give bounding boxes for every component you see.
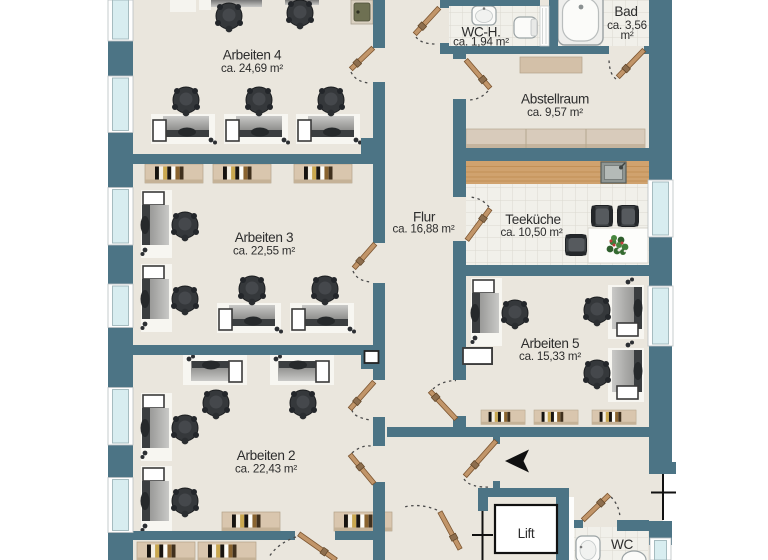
svg-text:Bad: Bad bbox=[614, 4, 637, 19]
svg-text:ca. 16,88 m²: ca. 16,88 m² bbox=[392, 223, 454, 236]
svg-text:Lift: Lift bbox=[518, 526, 535, 541]
svg-text:ca. 22,55 m²: ca. 22,55 m² bbox=[233, 245, 295, 258]
svg-text:ca. 9,57 m²: ca. 9,57 m² bbox=[527, 106, 583, 119]
svg-text:Abstellraum: Abstellraum bbox=[521, 92, 589, 107]
svg-text:ca. 15,33 m²: ca. 15,33 m² bbox=[519, 350, 581, 363]
svg-text:Arbeiten 2: Arbeiten 2 bbox=[237, 448, 295, 463]
svg-text:ca. 1,94 m²: ca. 1,94 m² bbox=[453, 36, 509, 49]
svg-text:ca. 24,69 m²: ca. 24,69 m² bbox=[221, 62, 283, 75]
svg-text:ca. 22,43 m²: ca. 22,43 m² bbox=[235, 463, 297, 476]
svg-text:Arbeiten 3: Arbeiten 3 bbox=[235, 230, 293, 245]
svg-text:Arbeiten 5: Arbeiten 5 bbox=[521, 336, 579, 351]
svg-text:ca. 10,50 m²: ca. 10,50 m² bbox=[500, 226, 562, 239]
svg-text:m²: m² bbox=[620, 29, 633, 42]
svg-text:Teeküche: Teeküche bbox=[505, 212, 560, 227]
svg-text:Arbeiten 4: Arbeiten 4 bbox=[223, 48, 282, 63]
svg-text:WC: WC bbox=[611, 537, 633, 552]
